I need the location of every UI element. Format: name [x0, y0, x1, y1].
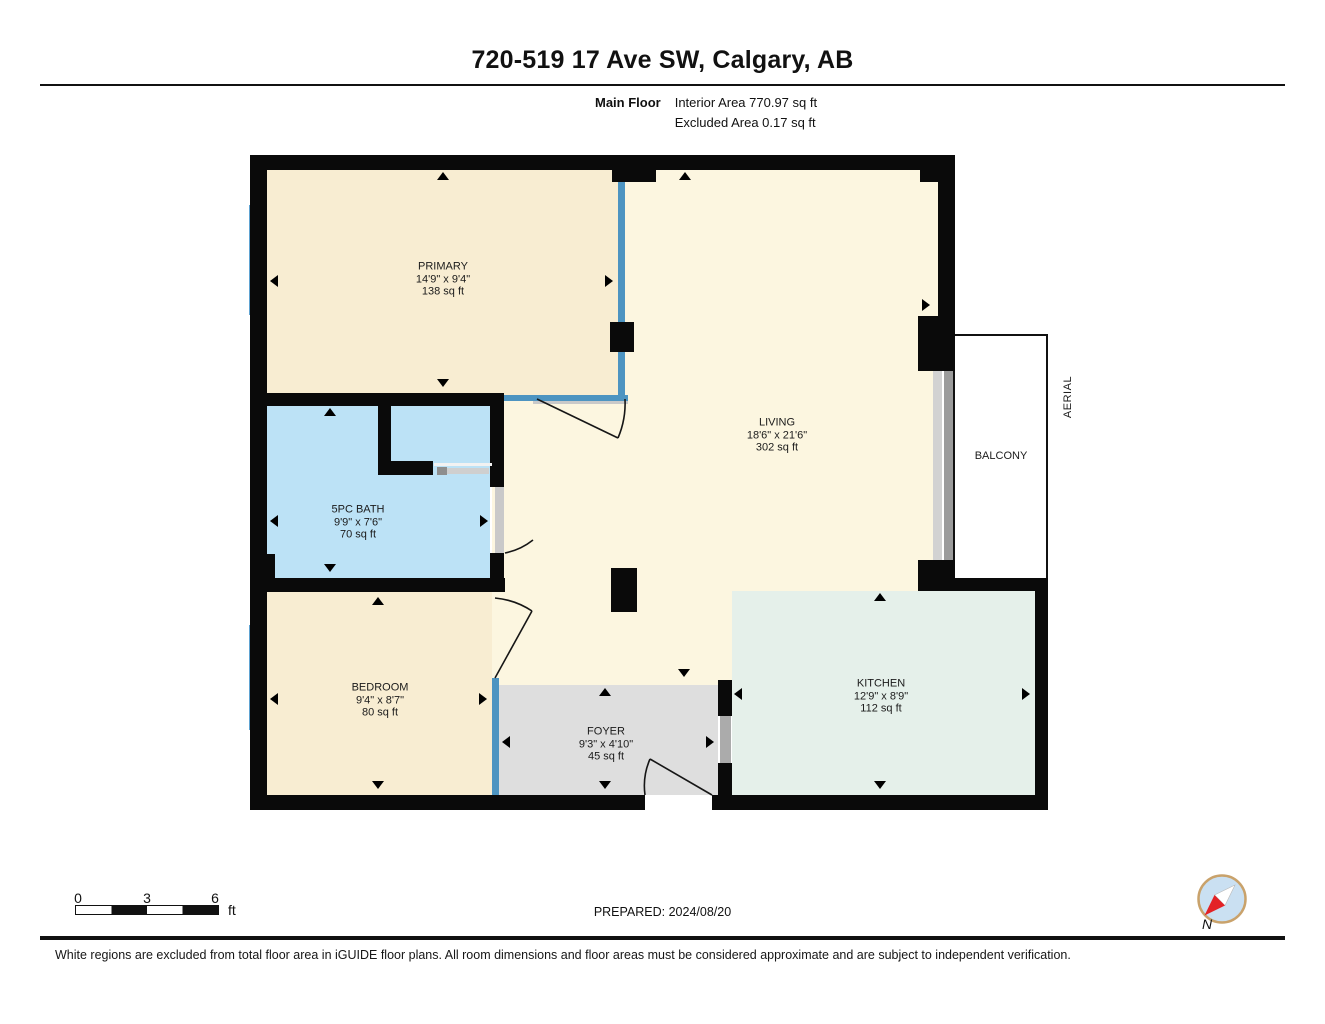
wall-segment	[250, 155, 267, 810]
north-label: N	[1202, 916, 1213, 932]
wall-segment	[263, 554, 275, 592]
prepared-date: PREPARED: 2024/08/20	[0, 905, 1325, 919]
dimension-arrow	[372, 781, 384, 789]
dimension-arrow	[599, 688, 611, 696]
room-name: FOYER	[579, 725, 633, 738]
room-name: 5PC BATH	[332, 503, 385, 516]
footer-divider	[40, 936, 1285, 940]
wall-segment	[611, 568, 637, 612]
wall-segment	[610, 322, 634, 352]
dimension-arrow	[678, 669, 690, 677]
room-name: LIVING	[747, 416, 807, 429]
room-area: 45 sq ft	[579, 750, 633, 763]
disclaimer-text: White regions are excluded from total fl…	[55, 948, 1071, 962]
wall-segment	[490, 393, 504, 487]
glass-wall	[492, 678, 499, 795]
room-label-bedroom: BEDROOM 9'4" x 8'7" 80 sq ft	[352, 681, 409, 719]
room-label-living: LIVING 18'6" x 21'6" 302 sq ft	[747, 416, 807, 454]
wall-segment	[718, 763, 732, 795]
room-label-bath: 5PC BATH 9'9" x 7'6" 70 sq ft	[332, 503, 385, 541]
wall-segment	[918, 316, 938, 371]
scale-tick-0: 0	[71, 890, 85, 906]
room-label-primary: PRIMARY 14'9" x 9'4" 138 sq ft	[416, 260, 470, 298]
dimension-arrow	[1022, 688, 1030, 700]
wall-segment	[1035, 578, 1048, 808]
wall-segment	[490, 553, 504, 592]
room-area: 80 sq ft	[352, 706, 409, 719]
dimension-arrow	[437, 172, 449, 180]
dimension-arrow	[922, 299, 930, 311]
glass-wall	[503, 395, 628, 401]
dimension-arrow	[679, 172, 691, 180]
dimension-arrow	[734, 688, 742, 700]
floorplan-page: { "header": { "title": "720-519 17 Ave S…	[0, 0, 1325, 1024]
room-dims: 9'9" x 7'6"	[332, 516, 385, 529]
dimension-arrow	[324, 564, 336, 572]
wall-segment	[250, 578, 505, 592]
dimension-arrow	[599, 781, 611, 789]
wall-segment	[918, 578, 1048, 591]
room-dims: 12'9" x 8'9"	[854, 690, 908, 703]
dimension-arrow	[372, 597, 384, 605]
dimension-arrow	[270, 515, 278, 527]
dimension-arrow	[324, 408, 336, 416]
room-name: KITCHEN	[854, 677, 908, 690]
glass-wall	[618, 170, 625, 400]
wall-segment	[612, 170, 656, 182]
foyer-closet-door	[720, 716, 731, 763]
wall-segment	[920, 170, 938, 182]
room-label-kitchen: KITCHEN 12'9" x 8'9" 112 sq ft	[854, 677, 908, 715]
room-area: 302 sq ft	[747, 441, 807, 454]
dimension-arrow	[270, 275, 278, 287]
wall-segment	[718, 680, 732, 716]
room-dims: 14'9" x 9'4"	[416, 273, 470, 286]
shower-door-handle	[437, 467, 447, 475]
wall-segment	[250, 393, 503, 406]
aerial-label: AERIAL	[1062, 376, 1074, 418]
wall-segment	[938, 155, 955, 371]
dimension-arrow	[874, 781, 886, 789]
room-dims: 9'3" x 4'10"	[579, 738, 633, 751]
room-dims: 18'6" x 21'6"	[747, 429, 807, 442]
wall-segment	[378, 461, 433, 475]
room-name: PRIMARY	[416, 260, 470, 273]
dimension-arrow	[605, 275, 613, 287]
wall-segment	[250, 155, 955, 170]
dimension-arrow	[502, 736, 510, 748]
dimension-arrow	[270, 693, 278, 705]
bath-door-slab	[495, 487, 504, 553]
dimension-arrow	[479, 693, 487, 705]
dimension-arrow	[874, 593, 886, 601]
room-area: 138 sq ft	[416, 285, 470, 298]
scale-tick-3: 3	[140, 890, 154, 906]
room-dims: 9'4" x 8'7"	[352, 694, 409, 707]
room-label-foyer: FOYER 9'3" x 4'10" 45 sq ft	[579, 725, 633, 763]
scale-tick-6: 6	[208, 890, 222, 906]
room-name: BEDROOM	[352, 681, 409, 694]
balcony-sliding-door	[933, 371, 942, 562]
balcony-label: BALCONY	[975, 450, 1028, 463]
room-area: 70 sq ft	[332, 528, 385, 541]
floorplan-canvas	[0, 0, 1325, 1024]
entry-door-opening	[645, 795, 712, 810]
dimension-arrow	[706, 736, 714, 748]
bath-counter-line	[434, 463, 492, 466]
compass-icon: N	[1194, 872, 1252, 932]
balcony-sliding-door	[944, 371, 953, 562]
dimension-arrow	[437, 379, 449, 387]
room-area: 112 sq ft	[854, 702, 908, 715]
dimension-arrow	[480, 515, 488, 527]
